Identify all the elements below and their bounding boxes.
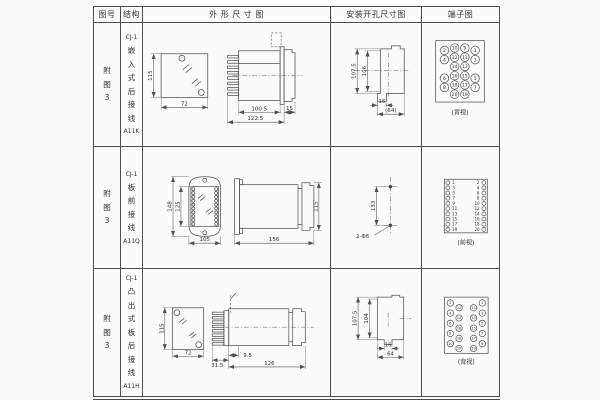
- outline-drawing-a11h: 115 72 9.5: [143, 270, 330, 396]
- svg-text:18: 18: [457, 336, 461, 340]
- svg-text:15: 15: [452, 216, 458, 221]
- svg-text:1: 1: [481, 301, 483, 305]
- terminal-circles-grid: 2468101214161820911131517191357: [440, 44, 479, 99]
- svg-text:1: 1: [474, 48, 477, 54]
- svg-text:3: 3: [452, 185, 455, 190]
- dim-width: 105: [199, 237, 210, 243]
- svg-text:19: 19: [462, 92, 468, 98]
- outline-cell: 148 125 105 156 115: [143, 147, 331, 268]
- dim-outer-height: 148: [168, 201, 174, 212]
- structure-cell: CJ-1 凸 出 式 板 后 接 线 A11H: [121, 269, 143, 396]
- outline-cell: 115 72 100.5 12: [143, 23, 331, 146]
- svg-text:11: 11: [471, 306, 475, 310]
- row-a11k: 附 图 3 CJ-1 嵌 入 式 后 接 线 A11K 115 72: [94, 23, 499, 147]
- svg-text:17: 17: [462, 83, 468, 89]
- col-header-figure-no-label: 图号: [99, 9, 116, 20]
- dim-pins-width: 31.5: [211, 362, 223, 368]
- mirror-hatch-mark: [189, 332, 196, 338]
- figure-cell: 附 图 3: [94, 23, 121, 146]
- mounting-drawing-a11h: 107.5 104 16 64: [331, 270, 421, 396]
- dim-front-height: 115: [148, 70, 154, 81]
- svg-text:4: 4: [477, 185, 480, 190]
- dim-hole-span: 133: [371, 200, 377, 211]
- figure-label: 附 图 3: [103, 312, 111, 353]
- svg-text:15: 15: [471, 326, 475, 330]
- figure-cell: 附 图 3: [94, 147, 121, 268]
- svg-text:7: 7: [474, 85, 477, 91]
- terminal-circles-grid: 2468101214161820111315171913579: [447, 299, 485, 351]
- view-caption: (背视): [458, 358, 475, 366]
- col-header-outline-dims-label: 外 形 尺 寸 图: [209, 9, 264, 20]
- dim-inner-height: 125: [175, 201, 181, 212]
- mirror-hatch-mark: [179, 318, 186, 324]
- screw-hole: [203, 231, 207, 235]
- structure-cell: CJ-1 嵌 入 式 后 接 线 A11K: [121, 23, 143, 146]
- svg-text:7: 7: [481, 331, 483, 335]
- svg-text:6: 6: [449, 321, 451, 325]
- structure-label: 凸 出 式 板 后 接 线: [128, 285, 136, 380]
- model-label: CJ-1: [126, 34, 138, 41]
- col-header-structure: 结构: [121, 7, 143, 22]
- header-row: 图号 结构 外 形 尺 寸 图 安装开孔尺寸图 端子图: [94, 7, 499, 23]
- svg-text:3: 3: [481, 311, 483, 315]
- col-header-figure-no: 图号: [94, 7, 121, 22]
- dim-body-width: 100.5: [251, 106, 267, 112]
- view-caption: (背视): [451, 109, 468, 117]
- mirror-hatch-mark: [192, 79, 201, 87]
- svg-text:2: 2: [449, 301, 451, 305]
- dashed-handle: [271, 33, 281, 47]
- code-label: A11Q: [123, 238, 139, 245]
- screw-hole: [203, 178, 207, 182]
- dim-body-length: 126: [264, 360, 275, 366]
- structure-cell: CJ-1 板 前 接 线 A11Q: [121, 147, 143, 268]
- dim-tab-width: 16: [378, 99, 386, 105]
- dim-step: 9.5: [243, 353, 252, 359]
- svg-text:9: 9: [452, 201, 455, 206]
- svg-text:15: 15: [462, 73, 468, 79]
- svg-text:12: 12: [452, 55, 458, 61]
- terminal-diagram-a11k: 2468101214161820911131517191357 (背视): [422, 23, 499, 146]
- figure-label: 附 图 3: [103, 64, 111, 105]
- svg-text:5: 5: [474, 76, 477, 82]
- svg-text:16: 16: [474, 216, 480, 221]
- terminal-circles-grid: 1357911131517192468101214161820: [446, 180, 486, 232]
- svg-text:14: 14: [457, 316, 461, 320]
- svg-text:9: 9: [481, 341, 483, 345]
- hole-spec-label: 2-Φ6: [356, 234, 370, 240]
- svg-text:4: 4: [449, 311, 451, 315]
- figure-label: 附 图 3: [103, 187, 111, 228]
- view-caption: (前视): [457, 239, 474, 247]
- col-header-terminals: 端子图: [422, 7, 499, 22]
- dim-cutout-inner-height: 104: [364, 312, 370, 323]
- structure-label: 嵌 入 式 后 接 线: [128, 44, 136, 125]
- col-header-structure-label: 结构: [123, 9, 140, 20]
- outline-drawing-a11q: 148 125 105 156 115: [143, 147, 330, 268]
- svg-text:10: 10: [448, 341, 452, 345]
- dim-front-height: 115: [159, 323, 165, 333]
- terminal-diagram-a11h: 2468101214161820111315171913579 (背视): [422, 270, 499, 396]
- svg-text:8: 8: [443, 85, 446, 91]
- svg-text:5: 5: [481, 321, 483, 325]
- svg-text:19: 19: [471, 346, 475, 350]
- terminal-cell: 2468101214161820111315171913579 (背视): [422, 269, 499, 396]
- svg-text:6: 6: [443, 76, 446, 82]
- svg-text:20: 20: [474, 227, 480, 232]
- terminal-pins-comb: [212, 312, 224, 345]
- relay-dimension-table: 图号 结构 外 形 尺 寸 图 安装开孔尺寸图 端子图 附 图 3 CJ-1 嵌…: [93, 6, 500, 397]
- svg-text:8: 8: [449, 331, 451, 335]
- code-label: A11H: [123, 383, 139, 390]
- dim-cutout-width: (64): [385, 108, 396, 114]
- dim-flange: 15: [286, 106, 294, 112]
- outline-cell: 115 72 9.5: [143, 269, 331, 396]
- svg-text:16: 16: [457, 326, 461, 330]
- col-header-outline-dims: 外 形 尺 寸 图: [143, 7, 331, 22]
- dim-cutout-outer-height: 107.5: [352, 63, 358, 79]
- figure-cell: 附 图 3: [94, 269, 121, 396]
- mounting-cell: 133 2-Φ6: [331, 147, 422, 268]
- svg-text:4: 4: [443, 57, 446, 63]
- svg-text:17: 17: [471, 336, 475, 340]
- svg-text:3: 3: [474, 57, 477, 63]
- svg-text:13: 13: [462, 64, 468, 70]
- model-label: CJ-1: [126, 275, 138, 282]
- svg-text:14: 14: [452, 64, 458, 70]
- terminal-cell: 2468101214161820911131517191357 (背视): [422, 23, 499, 146]
- row-a11h: 附 图 3 CJ-1 凸 出 式 板 后 接 线 A11H 115 72: [94, 269, 499, 396]
- dim-total-width: 122.5: [247, 116, 263, 122]
- svg-text:16: 16: [452, 73, 458, 79]
- svg-text:18: 18: [452, 83, 458, 89]
- mirror-hatch-mark: [183, 65, 192, 73]
- svg-text:13: 13: [471, 316, 475, 320]
- row-a11q: 附 图 3 CJ-1 板 前 接 线 A11Q 148 12: [94, 147, 499, 269]
- svg-text:20: 20: [457, 346, 461, 350]
- dim-cutout-outer-height: 107.5: [353, 310, 359, 325]
- terminal-diagram-a11q: 1357911131517192468101214161820 (前视): [422, 147, 499, 268]
- mirror-hatch-mark: [206, 208, 213, 214]
- mounting-drawing-a11k: 107.5 106 16 (64): [331, 23, 421, 146]
- terminal-cell: 1357911131517192468101214161820 (前视): [422, 147, 499, 268]
- col-header-mounting-holes-label: 安装开孔尺寸图: [346, 9, 406, 20]
- col-header-terminals-label: 端子图: [448, 9, 474, 20]
- svg-text:10: 10: [452, 46, 458, 52]
- dim-side-height: 115: [313, 201, 319, 212]
- outline-drawing-a11k: 115 72 100.5 12: [143, 23, 330, 146]
- svg-text:11: 11: [462, 55, 468, 61]
- svg-text:9: 9: [463, 46, 466, 52]
- mounting-drawing-a11q: 133 2-Φ6: [331, 147, 421, 268]
- dim-cutout-width: 64: [387, 351, 394, 357]
- mounting-cell: 107.5 106 16 (64): [331, 23, 422, 146]
- mounting-cell: 107.5 104 16 64: [331, 269, 422, 396]
- dim-front-width: 72: [181, 101, 188, 107]
- svg-text:12: 12: [457, 306, 461, 310]
- dim-tab-width: 16: [385, 342, 392, 348]
- svg-text:10: 10: [474, 201, 480, 206]
- terminal-strip-circles: [192, 188, 218, 226]
- structure-label: 板 前 接 线: [128, 181, 136, 235]
- dim-cutout-inner-height: 106: [362, 65, 368, 76]
- svg-text:2: 2: [443, 48, 446, 54]
- svg-text:20: 20: [452, 92, 458, 98]
- mirror-hatch-mark: [198, 195, 205, 201]
- dim-front-width: 72: [185, 350, 192, 356]
- dim-side-length: 156: [269, 237, 280, 243]
- model-label: CJ-1: [126, 171, 138, 178]
- col-header-mounting-holes: 安装开孔尺寸图: [331, 7, 422, 22]
- svg-text:19: 19: [452, 227, 458, 232]
- code-label: A11K: [124, 128, 140, 135]
